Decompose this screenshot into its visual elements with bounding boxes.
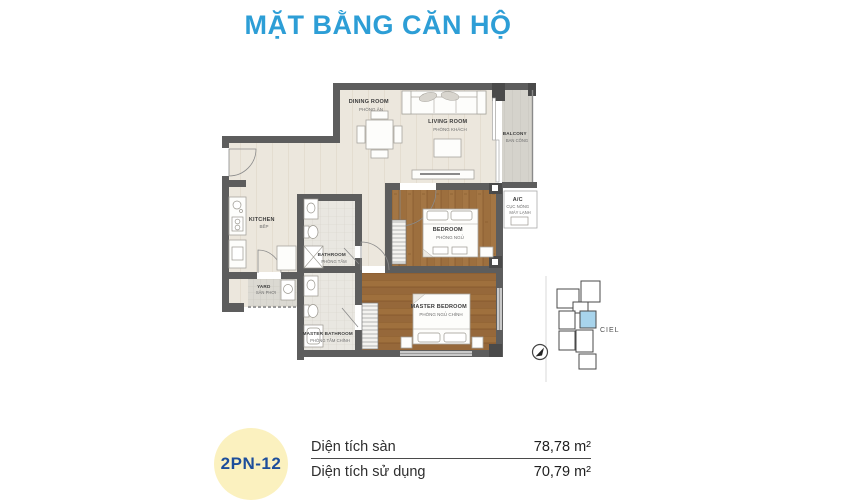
usable-area-value: 70,79 m² xyxy=(534,464,591,480)
unit-code: 2PN-12 xyxy=(221,454,282,474)
floor-area-label: Diện tích sàn xyxy=(311,439,396,455)
yard-label: YARD SÂN PHƠI xyxy=(256,275,276,295)
usable-area-label: Diện tích sử dụng xyxy=(311,464,426,480)
floor-plan-svg: DINING ROOM PHÒNG ĂN LIVING ROOM PHÒNG K… xyxy=(215,73,650,443)
info-divider xyxy=(311,458,591,459)
location-key-map: CIEL xyxy=(533,276,620,382)
usable-area-row: Diện tích sử dụng 70,79 m² xyxy=(311,461,591,482)
project-label: CIEL xyxy=(600,327,620,334)
page: MẶT BẰNG CĂN HỘ xyxy=(0,0,850,500)
floor-area-value: 78,78 m² xyxy=(534,439,591,455)
floor-area-row: Diện tích sàn 78,78 m² xyxy=(311,436,591,457)
page-title: MẶT BẰNG CĂN HỘ xyxy=(28,10,728,41)
compass-icon xyxy=(533,345,548,360)
highlighted-unit xyxy=(580,311,596,328)
yard-washer xyxy=(281,280,295,300)
unit-code-badge: 2PN-12 xyxy=(214,428,288,500)
area-info: Diện tích sàn 78,78 m² Diện tích sử dụng… xyxy=(311,436,591,482)
